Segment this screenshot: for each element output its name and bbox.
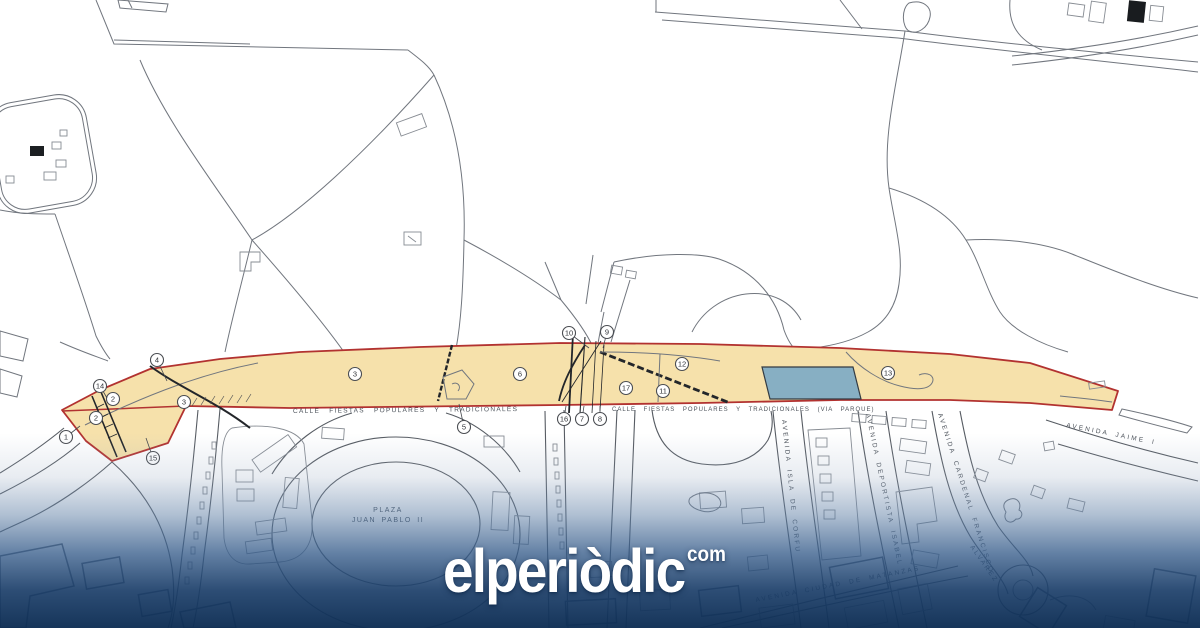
zone-marker-2: 2 — [107, 393, 120, 406]
zone-marker-7: 7 — [576, 406, 589, 426]
urban-plan-map: CALLE FIESTAS POPULARES Y TRADICIONALESC… — [0, 0, 1200, 628]
logo-tld-text: com — [687, 543, 726, 566]
svg-text:4: 4 — [155, 356, 159, 365]
svg-text:8: 8 — [598, 415, 602, 424]
svg-text:13: 13 — [884, 369, 892, 378]
logo-brand-text: elperiòdic — [443, 537, 684, 605]
svg-text:6: 6 — [518, 370, 522, 379]
svg-text:14: 14 — [96, 382, 104, 391]
label-avenida-deportista-isabel: AVENIDA DEPORTISTA ISABEL — [864, 413, 903, 567]
building-solid-icon — [1127, 0, 1146, 23]
svg-text:3: 3 — [353, 370, 357, 379]
svg-text:5: 5 — [462, 423, 466, 432]
svg-text:15: 15 — [149, 454, 157, 463]
zone-marker-13: 13 — [882, 367, 895, 380]
elperiodic-logo: elperiòdiccom — [443, 541, 726, 616]
svg-text:1: 1 — [64, 433, 68, 442]
svg-text:16: 16 — [560, 415, 568, 424]
water-parcel — [762, 367, 861, 399]
label-avenida-isla-de-corfu: AVENIDA ISLA DE CORFU — [780, 419, 801, 553]
walled-compound — [0, 90, 101, 218]
rural-roads — [0, 0, 1198, 397]
svg-text:11: 11 — [659, 387, 667, 396]
svg-text:7: 7 — [580, 415, 584, 424]
label-avenida-jaime: AVENIDA JAIME I — [1066, 422, 1157, 446]
label-calle-fiestas-west: CALLE FIESTAS POPULARES Y TRADICIONALES — [293, 406, 518, 415]
building-solid-icon — [30, 146, 44, 156]
svg-text:12: 12 — [678, 360, 686, 369]
svg-text:3: 3 — [182, 398, 186, 407]
label-plaza-line1: PLAZA — [373, 507, 403, 514]
label-plaza-line2: JUAN PABLO II — [352, 517, 424, 524]
svg-text:2: 2 — [111, 395, 115, 404]
svg-text:2: 2 — [94, 414, 98, 423]
zone-marker-3: 3 — [349, 368, 362, 381]
news-map-image: CALLE FIESTAS POPULARES Y TRADICIONALESC… — [0, 0, 1200, 628]
zone-marker-11: 11 — [657, 385, 670, 398]
topright-buildings — [1067, 0, 1163, 23]
svg-text:10: 10 — [565, 329, 573, 338]
zone-marker-12: 12 — [676, 358, 689, 371]
zone-marker-17: 17 — [620, 382, 633, 395]
zone-marker-6: 6 — [514, 368, 527, 381]
zone-marker-8: 8 — [594, 406, 607, 426]
zone-marker-2: 2 — [90, 412, 103, 425]
svg-text:9: 9 — [605, 328, 609, 337]
svg-text:17: 17 — [622, 384, 630, 393]
label-calle-fiestas-east: CALLE FIESTAS POPULARES Y TRADICIONALES … — [612, 407, 875, 413]
zone-marker-3: 3 — [178, 396, 191, 409]
